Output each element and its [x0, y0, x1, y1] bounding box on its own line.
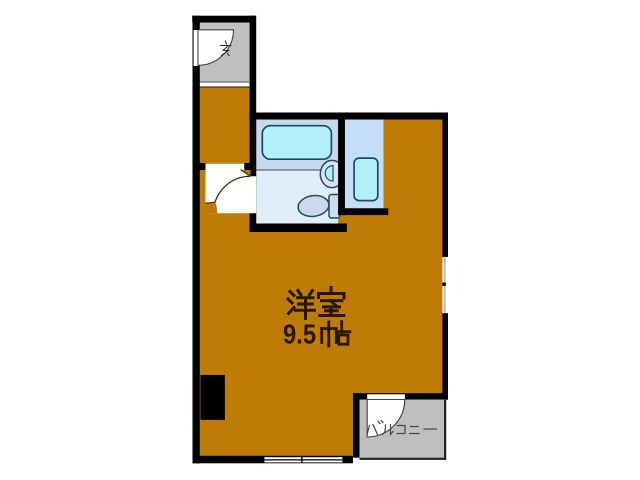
- svg-text:9.5: 9.5: [283, 318, 316, 350]
